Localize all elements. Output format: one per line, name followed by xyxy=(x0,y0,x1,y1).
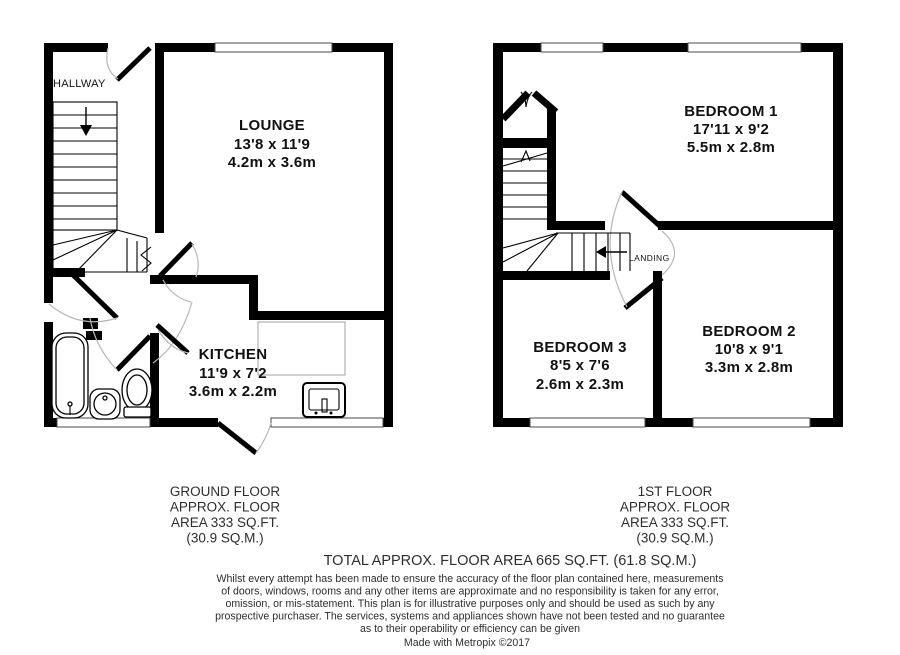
ground-caption-line-1: GROUND FLOOR xyxy=(170,484,281,499)
toilet xyxy=(122,369,152,417)
first-caption-line-3: AREA 333 SQ.FT. xyxy=(621,515,729,530)
kitchen-counter xyxy=(258,322,345,375)
floorplan-page: HALLWAY LOUNGE 13'8 x 11'9 4.2m x 3.6m K… xyxy=(0,0,900,655)
bathroom-door-leaf xyxy=(72,274,117,318)
bedroom1-size-imperial: 17'11 x 9'2 xyxy=(693,121,769,138)
stair-winder xyxy=(53,230,151,272)
bedroom2-size-imperial: 10'8 x 9'1 xyxy=(715,341,784,358)
bedroom1-size-metric: 5.5m x 2.8m xyxy=(687,139,775,156)
stairwell-window xyxy=(541,43,603,52)
disclaimer-line-1: Whilst every attempt has been made to en… xyxy=(216,573,723,585)
ground-caption-line-4: (30.9 SQ.M.) xyxy=(186,531,263,546)
ground-floor-caption: GROUND FLOOR APPROX. FLOOR AREA 333 SQ.F… xyxy=(170,484,281,546)
back-door-leaf xyxy=(218,423,256,453)
lounge-door-leaf xyxy=(160,243,192,276)
bedroom2-window xyxy=(693,418,810,427)
ground-floor-plan: HALLWAY LOUNGE 13'8 x 11'9 4.2m x 3.6m K… xyxy=(44,43,393,453)
total-area-line: TOTAL APPROX. FLOOR AREA 665 SQ.FT. (61.… xyxy=(324,553,697,569)
bedroom2-label: BEDROOM 2 xyxy=(702,323,796,340)
credit-line: Made with Metropix ©2017 xyxy=(404,637,530,649)
first-caption-line-1: 1ST FLOOR xyxy=(638,484,713,499)
hallway-label: HALLWAY xyxy=(53,78,106,90)
wash-basin xyxy=(90,389,120,419)
lounge-size-imperial: 13'8 x 11'9 xyxy=(234,136,310,153)
first-floor-caption: 1ST FLOOR APPROX. FLOOR AREA 333 SQ.FT. … xyxy=(620,484,731,546)
entrance-door-leaf xyxy=(117,48,150,80)
first-floor-plan: BEDROOM 1 17'11 x 9'2 5.5m x 2.8m LANDIN… xyxy=(493,43,843,427)
ground-caption-line-3: AREA 333 SQ.FT. xyxy=(171,515,279,530)
stair-break-mark xyxy=(141,247,151,271)
bedroom3-size-metric: 2.6m x 2.3m xyxy=(536,376,624,393)
wc-door-leaf xyxy=(117,336,150,370)
disclaimer-line-3: omission, or mis-statement. This plan is… xyxy=(225,598,715,610)
disclaimer-line-4: prospective purchaser. The services, sys… xyxy=(215,611,725,623)
disclaimer: Whilst every attempt has been made to en… xyxy=(215,573,725,635)
kitchen-size-imperial: 11'9 x 7'2 xyxy=(199,365,267,382)
bedroom2-size-metric: 3.3m x 2.8m xyxy=(705,359,793,376)
lounge-size-metric: 4.2m x 3.6m xyxy=(228,154,316,171)
kitchen-size-metric: 3.6m x 2.2m xyxy=(189,383,277,400)
kitchen-door-leaf xyxy=(157,325,188,353)
kitchen-window xyxy=(271,418,383,427)
bedroom3-window xyxy=(530,418,645,427)
lounge-label: LOUNGE xyxy=(239,117,305,134)
bedroom1-label: BEDROOM 1 xyxy=(684,103,778,120)
bedroom3-size-imperial: 8'5 x 7'6 xyxy=(550,357,610,374)
floorplan-canvas: HALLWAY LOUNGE 13'8 x 11'9 4.2m x 3.6m K… xyxy=(0,0,900,655)
kitchen-sink xyxy=(303,383,345,417)
lounge-window xyxy=(215,43,332,52)
first-caption-line-4: (30.9 SQ.M.) xyxy=(636,531,713,546)
first-caption-line-2: APPROX. FLOOR xyxy=(620,500,731,515)
kitchen-fixtures xyxy=(258,322,345,417)
disclaimer-line-2: of doors, windows, rooms and any other i… xyxy=(221,586,719,598)
alcove-angled-wall-right xyxy=(534,93,556,112)
ground-caption-line-2: APPROX. FLOOR xyxy=(170,500,281,515)
bedroom1-window xyxy=(688,43,801,52)
ground-floor-staircase xyxy=(53,102,151,272)
bedroom1-door-leaf xyxy=(622,192,662,228)
stairs-up-arrow xyxy=(596,246,627,258)
bedroom3-label: BEDROOM 3 xyxy=(533,339,627,356)
stairs-down-arrow xyxy=(80,107,92,136)
stair-break-mark xyxy=(521,151,530,162)
kitchen-label: KITCHEN xyxy=(199,346,268,363)
bathtub xyxy=(52,333,88,418)
disclaimer-line-5: as to their operability or efficiency ca… xyxy=(360,623,580,635)
landing-label: LANDING xyxy=(629,253,670,263)
